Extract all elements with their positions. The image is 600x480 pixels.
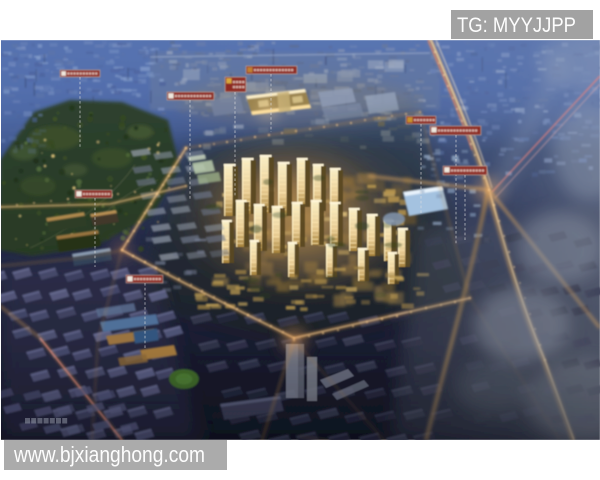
svg-text:TG: MYYJJPP: TG: MYYJJPP — [457, 14, 576, 37]
svg-text:www.bjxianghong.com: www.bjxianghong.com — [13, 442, 205, 467]
